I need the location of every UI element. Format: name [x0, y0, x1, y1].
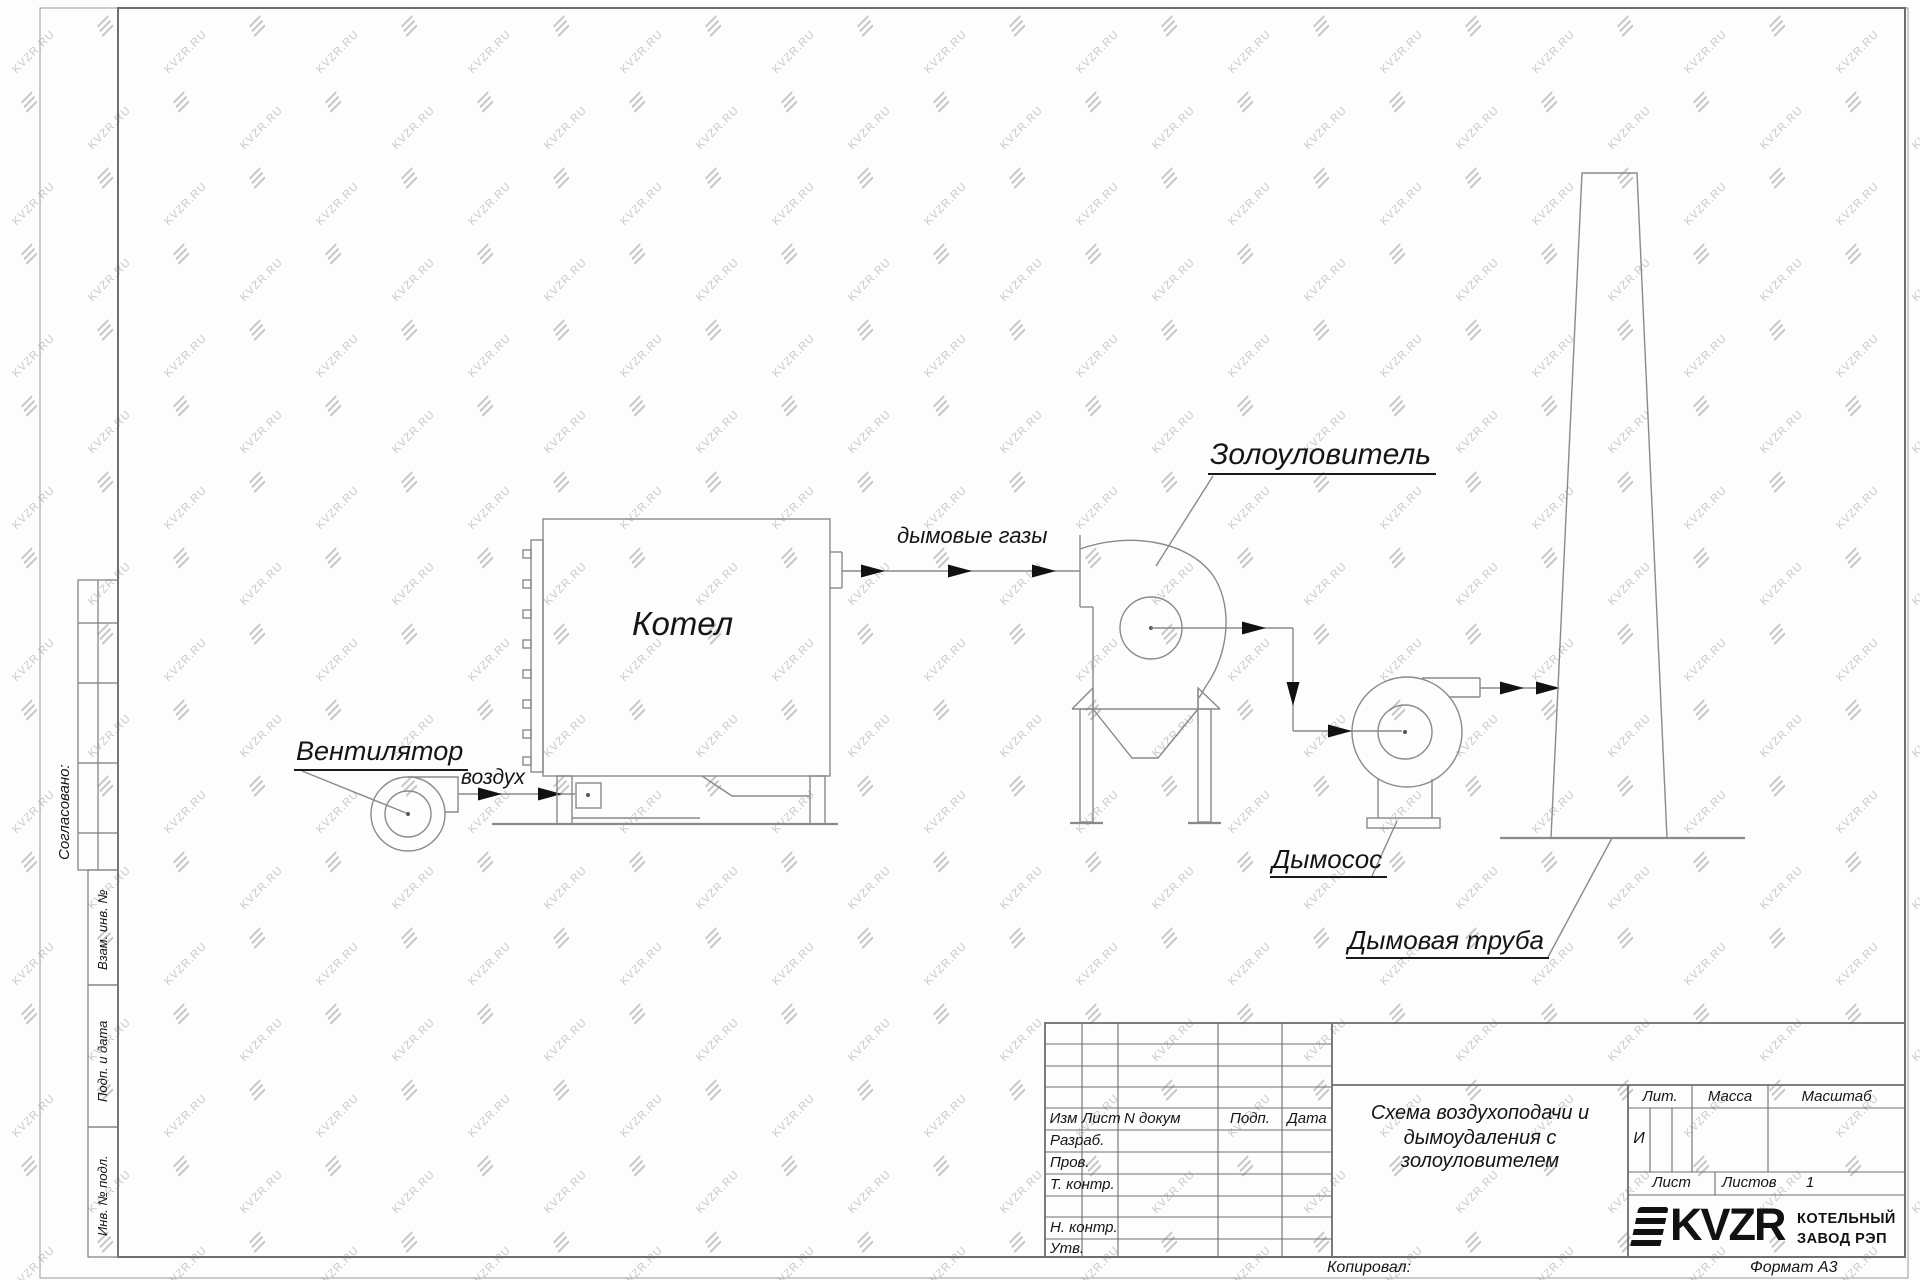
doc-title-line2: дымоудаления с	[1332, 1127, 1628, 1150]
listov-label: Листов	[1722, 1174, 1777, 1191]
fan-label: Вентилятор	[294, 737, 468, 771]
sidebar-approved-label: Согласовано:	[56, 764, 73, 860]
kopiroval-label: Копировал:	[1327, 1259, 1411, 1277]
list-label: Лист	[1628, 1174, 1715, 1191]
sidebar-box-podp-data: Подп. и дата	[95, 1021, 110, 1102]
company-line2: ЗАВОД РЭП	[1797, 1230, 1896, 1250]
row-utv: Утв.	[1050, 1240, 1084, 1257]
chimney-drawing	[1500, 173, 1745, 957]
fan-leader-line	[302, 771, 406, 813]
rev-col-list: Лист	[1082, 1110, 1118, 1127]
ash-catcher-label: Золоуловитель	[1208, 438, 1436, 475]
boiler-label: Котел	[632, 606, 733, 642]
flue-gases-label: дымовые газы	[897, 524, 1047, 548]
row-prov: Пров.	[1050, 1154, 1090, 1171]
doc-title-line1: Схема воздухоподачи и	[1332, 1102, 1628, 1125]
format-label: Формат А3	[1750, 1259, 1838, 1277]
boiler-drawing	[492, 519, 842, 824]
company-line1: КОТЕЛЬНЫЙ	[1797, 1210, 1896, 1230]
rev-col-izm: Изм	[1045, 1110, 1082, 1127]
fan-drawing	[302, 771, 458, 851]
massa-header: Масса	[1692, 1088, 1768, 1105]
doc-title-line3: золоуловителем	[1332, 1150, 1628, 1173]
lit-header: Лит.	[1628, 1088, 1692, 1105]
row-n-kontr: Н. контр.	[1050, 1219, 1118, 1236]
exhauster-label: Дымосос	[1270, 845, 1387, 878]
kvzr-logo-text: KVZR	[1670, 1199, 1785, 1251]
drawing-sheet: KVZR.RUKVZR.RUKVZR.RUKVZR.RUKVZR.RUKVZR.…	[0, 0, 1920, 1280]
air-label: воздух	[461, 766, 525, 789]
rev-col-doc: N докум	[1124, 1110, 1181, 1127]
rev-col-podp: Подп.	[1218, 1110, 1282, 1127]
sidebar-box-vzam-inv: Взам. инв. №	[95, 890, 110, 970]
cyclone-drawing	[1070, 476, 1226, 823]
sidebar-box-inv-podl: Инв. № подл.	[95, 1155, 110, 1236]
masshtab-header: Масштаб	[1768, 1088, 1905, 1105]
rev-col-data: Дата	[1282, 1110, 1332, 1127]
listov-value: 1	[1790, 1174, 1830, 1191]
row-razrab: Разраб.	[1050, 1132, 1104, 1149]
row-t-kontr: Т. контр.	[1050, 1176, 1115, 1193]
chimney-label: Дымовая труба	[1346, 926, 1549, 959]
company-name: КОТЕЛЬНЫЙ ЗАВОД РЭП	[1797, 1210, 1896, 1249]
flue-gas-line	[842, 565, 1080, 578]
lit-value: И	[1628, 1130, 1650, 1148]
chimney-leader-line	[1548, 838, 1612, 957]
